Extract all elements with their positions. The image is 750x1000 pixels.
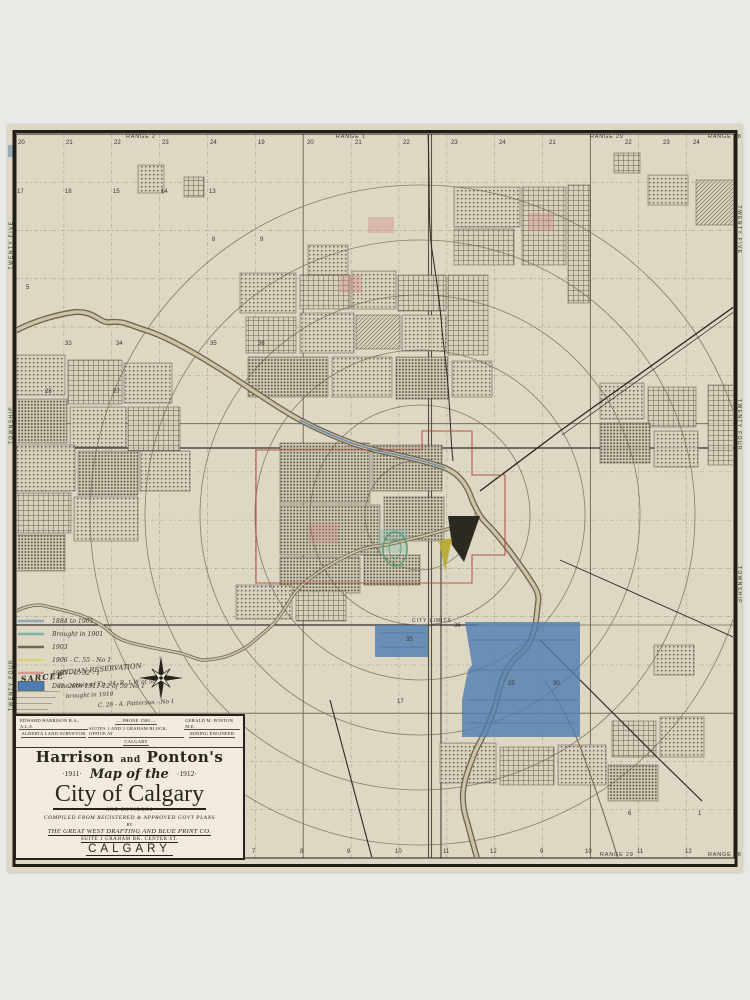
legend-label: 1906 - C. 55 - No 1: [52, 657, 111, 664]
section-number-row2: 14: [161, 189, 168, 195]
subdivision-block: [78, 451, 138, 495]
edge-smudge: [8, 145, 13, 157]
pink-tint-block: [340, 275, 362, 293]
subdivision-block: [448, 275, 488, 355]
section-number-top: 23: [663, 140, 670, 146]
range-label-top: RANGE 29: [590, 134, 624, 140]
subdivision-block: [308, 245, 348, 275]
section-number-top: 24: [693, 140, 700, 146]
section-number-top: 21: [549, 140, 556, 146]
section-number-bottom: 11: [637, 849, 644, 855]
subdivision-block: [612, 721, 656, 757]
section-number-top: 21: [355, 140, 362, 146]
surveyor-credit: EDWARD HARRISON B.A., A.L.S. ALBERTA LAN…: [19, 718, 88, 746]
section-number-bottom: 9: [540, 849, 544, 855]
section-number: 33: [65, 341, 72, 347]
subdivision-block: [454, 229, 514, 265]
section-number-top: 22: [403, 140, 410, 146]
legend-label: 1884 to 1901: [52, 618, 94, 625]
section-number: 30: [553, 681, 560, 687]
map-of-the: Map of the: [82, 767, 177, 782]
subdivision-block: [660, 717, 704, 757]
subdivision-block: [15, 493, 71, 533]
by-line: BY: [20, 822, 239, 827]
compiled-line: COMPILED FROM REGISTERED & APPROVED GOVT…: [20, 815, 239, 821]
section-number-top: 23: [162, 140, 169, 146]
section-number-bottom: 10: [585, 849, 592, 855]
subdivision-block: [648, 175, 688, 205]
fine-print-line: [14, 697, 56, 698]
section-number-top: 21: [66, 140, 73, 146]
subdivision-block: [248, 357, 328, 397]
section-number-row2: 16: [65, 189, 72, 195]
subdivision-block: [300, 313, 354, 353]
section-number: 34: [116, 341, 123, 347]
section-number: 28: [45, 389, 52, 395]
subdivision-block: [15, 355, 65, 395]
office-credit: — PHONE 1580 — SUITES 1 AND 2 GRAHAM BLO…: [88, 718, 184, 746]
subdivision-block: [648, 387, 696, 427]
engineer-title: MINING ENGINEER: [189, 731, 235, 738]
subdivision-block: [398, 275, 446, 311]
subdivision-block: [124, 363, 172, 403]
engineer-credit: GERALD M. PONTON M.E. MINING ENGINEER: [184, 718, 240, 746]
section-number-bottom: 12: [685, 849, 692, 855]
section-number-bottom: 12: [490, 849, 497, 855]
railway-east: [560, 560, 740, 640]
title-block: EDWARD HARRISON B.A., A.L.S. ALBERTA LAN…: [14, 714, 245, 860]
subdivision-block: [15, 399, 67, 443]
subdivision-block: [396, 357, 448, 399]
section-number-top: 22: [114, 140, 121, 146]
section-number: 9: [260, 237, 264, 243]
section-number-bottom: 10: [395, 849, 402, 855]
title-block-main: HarrisonandPonton's ·1911·Map of the·191…: [16, 748, 243, 860]
fine-print-line: [14, 691, 60, 692]
company-address: SUITE 1 GRAHAM BK. CENTER ST.: [20, 837, 239, 842]
subdivision-block: [500, 747, 554, 785]
section-number: 36: [258, 341, 265, 347]
year-1912: ·1912·: [177, 769, 197, 778]
section-number: 6: [628, 811, 632, 817]
section-number: 35: [210, 341, 217, 347]
map-of-the-line: ·1911·Map of the·1912·: [20, 767, 239, 781]
range-label-top: RANGE 2: [126, 134, 156, 140]
range-label-bottom: RANGE 29: [600, 852, 634, 858]
section-number-top: 19: [258, 140, 265, 146]
subdivision-block: [600, 383, 644, 419]
title-block-header: EDWARD HARRISON B.A., A.L.S. ALBERTA LAN…: [16, 716, 243, 748]
maker-ponton: Ponton's: [147, 748, 224, 766]
subdivision-block: [74, 497, 138, 541]
section-number-top: 20: [18, 140, 25, 146]
subdivision-block: [452, 361, 492, 397]
section-number-row2: 17: [17, 189, 24, 195]
section-number-top: 22: [625, 140, 632, 146]
section-number-bottom: 9: [347, 849, 351, 855]
legend-note: brought in 1910: [66, 692, 114, 700]
subdivision-block: [364, 555, 420, 585]
section-number-top: 24: [210, 140, 217, 146]
subdivision-block: [246, 317, 296, 353]
product-image-stage: 1884 to 1901Brought in 190119031906 - C.…: [0, 0, 750, 1000]
subdivision-block: [654, 431, 698, 467]
subdivision-block: [696, 180, 734, 225]
signature-left: F. A. SHERLOCK: [22, 857, 51, 860]
indian-reservation-label: INDIAN RESERVATION: [58, 662, 143, 677]
blue-patch-east: [462, 622, 580, 737]
subdivision-block: [600, 423, 650, 463]
subdivision-block: [454, 187, 520, 227]
section-number-top: 23: [451, 140, 458, 146]
section-number-bottom: 11: [443, 849, 450, 855]
subdivision-block: [402, 315, 446, 351]
section-number: 36: [454, 623, 461, 629]
subdivision-block: [280, 443, 370, 503]
section-number: 1: [698, 811, 702, 817]
section-number: 25: [508, 681, 515, 687]
subdivision-block: [614, 153, 640, 173]
subdivision-block: [356, 315, 400, 349]
maker-and: and: [114, 755, 146, 765]
year-1911: ·1911·: [62, 769, 82, 778]
section-number: 8: [212, 237, 216, 243]
subdivision-block: [236, 585, 292, 619]
maker-harrison: Harrison: [36, 748, 115, 766]
map-legend: 1884 to 1901Brought in 190119031906 - C.…: [14, 618, 175, 710]
subdivision-block: [332, 357, 392, 397]
section-number-row2: 13: [209, 189, 216, 195]
subdivision-block: [15, 445, 75, 491]
compass-center: [159, 676, 163, 680]
pink-tint-block: [528, 213, 554, 231]
map-title: City of Calgary: [20, 782, 239, 806]
section-number: 35: [406, 637, 413, 643]
section-number-row2: 15: [113, 189, 120, 195]
subdivision-block: [296, 591, 346, 621]
subdivision-block: [608, 765, 658, 801]
section-number-top: 20: [307, 140, 314, 146]
blue-patch-west: [375, 625, 428, 657]
office-address: SUITES 1 AND 2 GRAHAM BLOCK, OFFICE AT: [88, 726, 184, 738]
map-paper: 1884 to 1901Brought in 190119031906 - C.…: [8, 125, 742, 872]
subdivision-block: [15, 535, 65, 571]
map-makers: HarrisonandPonton's: [20, 750, 239, 767]
city-limits-label: CITY LIMITS: [412, 618, 452, 624]
legend-note: C. 28 - A. Patterson - No 1: [98, 699, 175, 709]
compass-rose: [139, 656, 183, 700]
pink-tint-block: [368, 217, 394, 233]
engineer-name: GERALD M. PONTON M.E.: [184, 718, 240, 730]
phone: — PHONE 1580 —: [115, 718, 157, 725]
subdivision-block: [184, 177, 204, 197]
company-line: THE GREAT WEST DRAFTING AND BLUE PRINT C…: [20, 828, 239, 835]
subdivision-block: [240, 273, 296, 313]
office-city: CALGARY: [123, 739, 148, 746]
section-number-top: 24: [499, 140, 506, 146]
section-number: 17: [397, 699, 404, 705]
subdivision-block: [140, 451, 190, 491]
surveyor-title: ALBERTA LAND SURVEYOR: [21, 731, 87, 738]
fine-print-line: [14, 703, 52, 704]
section-number: 5: [26, 285, 30, 291]
calgary-line: CALGARY: [20, 843, 239, 855]
surveyor-name: EDWARD HARRISON B.A., A.L.S.: [19, 718, 88, 730]
section-number: 27: [113, 389, 120, 395]
legend-label: Brought in 1901: [51, 631, 103, 638]
subdivision-block: [68, 360, 122, 404]
fine-print-line: [14, 709, 48, 710]
legend-label: 1903: [52, 644, 68, 651]
